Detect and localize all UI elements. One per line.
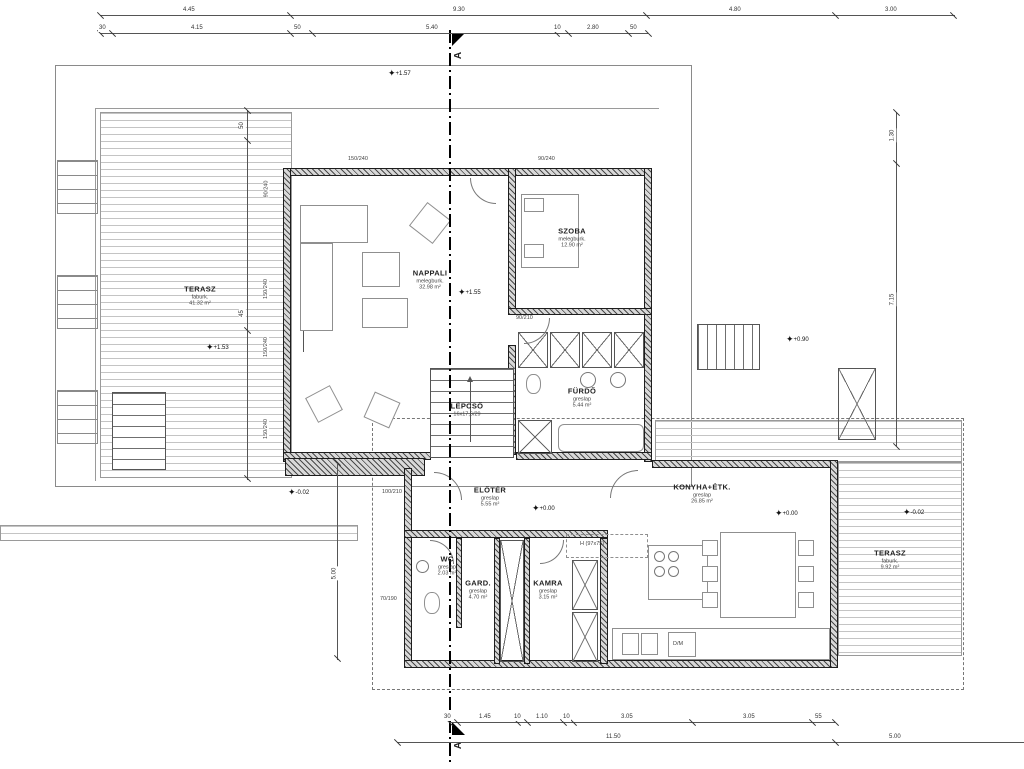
room-label-gard: GARD. greslap 4.70 m² (465, 579, 491, 600)
chair (798, 540, 814, 556)
window-dim: 70/190 (380, 596, 397, 602)
edge-steps (57, 275, 98, 329)
garden-wall (0, 525, 358, 541)
level-value: -0.02 (911, 510, 925, 516)
room-name: GARD. (465, 579, 491, 588)
room-area: 12.90 m² (558, 242, 586, 248)
room-label-szoba: SZOBA melegburk. 12.90 m² (558, 227, 586, 248)
wall-segment (283, 168, 652, 176)
chair (702, 592, 718, 608)
dim-label: 10 (562, 714, 571, 721)
terrace-deck-band (655, 420, 962, 462)
dim-line (337, 462, 338, 660)
pillow (524, 198, 544, 212)
dim-label: 30 (98, 25, 107, 32)
room-name: TERASZ (184, 285, 216, 294)
level-star-icon: ✦ (786, 334, 794, 344)
room-name: WC (438, 555, 457, 564)
wall-segment (283, 168, 291, 462)
dim-label: 30 (443, 714, 452, 721)
room-finish: melegburk. (558, 236, 586, 242)
level-value: +0.90 (794, 337, 809, 343)
fridge-dashed (566, 534, 648, 558)
room-finish: 16x17,6/29 (451, 411, 484, 417)
dim-label: 4.15 (190, 25, 204, 32)
dim-label: 5.00 (888, 734, 902, 741)
room-area: 26.85 m² (673, 498, 730, 504)
level-marker: ✦+0.00 (775, 508, 798, 519)
dim-label: 9.30 (452, 7, 466, 14)
toilet (526, 374, 541, 394)
section-line (449, 30, 451, 765)
chair (702, 566, 718, 582)
room-finish: melegburk. (413, 278, 447, 284)
stair-arrow-head (467, 376, 473, 382)
dim-label: 10 (553, 25, 562, 32)
wall-segment (508, 308, 652, 315)
room-label-terasz-felso: TERASZ faburk. 41.32 m² (184, 285, 216, 306)
level-marker: ✦-0.02 (903, 507, 924, 518)
room-area: 4.70 m² (465, 594, 491, 600)
room-area: 3.15 m² (533, 594, 562, 600)
chair (702, 540, 718, 556)
room-label-wc: WC greslap 2.03 m² (438, 555, 457, 576)
level-marker: ✦+1.53 (206, 342, 229, 353)
level-star-icon: ✦ (775, 508, 783, 518)
dim-label: 55 (814, 714, 823, 721)
level-marker: ✦+1.55 (458, 287, 481, 298)
level-value: +1.53 (214, 345, 229, 351)
room-area: 2.03 m² (438, 570, 457, 576)
section-flag-top (452, 33, 465, 46)
exterior-stair-left (112, 392, 166, 470)
chair (798, 592, 814, 608)
wall-segment (652, 460, 838, 468)
room-area: 41.32 m² (184, 300, 216, 306)
level-marker: ✦-0.02 (288, 487, 309, 498)
dim-label: 4.45 (182, 7, 196, 14)
cooktop-burner (654, 551, 665, 562)
dim-label: 10 (513, 714, 522, 721)
level-star-icon: ✦ (458, 287, 466, 297)
dim-label: 45 (239, 309, 246, 318)
closet-unit (550, 332, 580, 368)
level-value: +1.57 (396, 71, 411, 77)
level-star-icon: ✦ (388, 68, 396, 78)
level-star-icon: ✦ (206, 342, 214, 352)
closet-unit (582, 332, 612, 368)
window-dim: 90/210 (516, 315, 533, 321)
room-label-furdo: FÜRDŐ greslap 5.44 m² (568, 387, 596, 408)
exterior-stair-right (697, 324, 760, 370)
sink-bowl (641, 633, 658, 655)
room-name: KONYHA+ÉTK. (673, 483, 730, 492)
edge-steps (57, 160, 98, 214)
room-area: 5.44 m² (568, 402, 596, 408)
cooktop-burner (654, 566, 665, 577)
wall-segment (524, 538, 530, 664)
wall-segment (456, 538, 462, 628)
level-star-icon: ✦ (903, 507, 911, 517)
closet-unit (614, 332, 644, 368)
dim-label: 1.30 (889, 129, 896, 143)
pantry-shelf (572, 560, 598, 610)
dim-label: 5.40 (425, 25, 439, 32)
level-value: +0.00 (783, 511, 798, 517)
window-dim: 90/240 (538, 156, 555, 162)
room-finish: greslap (438, 564, 457, 570)
dim-label: 50 (293, 25, 302, 32)
dim-label: 5.00 (331, 567, 338, 581)
sofa (300, 205, 368, 243)
sideboard (362, 298, 408, 328)
room-label-konyha: KONYHA+ÉTK. greslap 26.85 m² (673, 483, 730, 504)
room-name: SZOBA (558, 227, 586, 236)
exterior-ramp-right (838, 368, 876, 440)
pantry-shelf (572, 612, 598, 662)
wall-segment (404, 468, 412, 668)
dim-line (100, 33, 648, 34)
room-name: ELŐTÉR (474, 486, 506, 495)
edge-steps (57, 390, 98, 444)
cooktop-burner (668, 566, 679, 577)
sink-bowl (622, 633, 639, 655)
dining-table (720, 532, 796, 618)
room-finish: greslap (465, 588, 491, 594)
shaft (500, 540, 524, 662)
level-star-icon: ✦ (532, 503, 540, 513)
washbasin (416, 560, 429, 573)
window-dim: 150/240 (263, 279, 269, 299)
dim-label: 2.80 (586, 25, 600, 32)
dim-line (100, 15, 955, 16)
level-value: +0.00 (540, 506, 555, 512)
dim-label: 1.45 (478, 714, 492, 721)
dim-label: 11.50 (605, 734, 622, 741)
wall-segment (830, 460, 838, 668)
window-dim: 150/240 (348, 156, 368, 162)
room-label-kamra: KAMRA greslap 3.15 m² (533, 579, 562, 600)
cooktop-burner (668, 551, 679, 562)
room-label-eloter: ELŐTÉR greslap 5.55 m² (474, 486, 506, 507)
level-value: -0.02 (296, 490, 310, 496)
coffee-table (362, 252, 400, 287)
window-dim: 150/240 (263, 337, 269, 357)
dim-label: 4.80 (728, 7, 742, 14)
washbasin (610, 372, 626, 388)
sofa (300, 243, 333, 331)
dim-line (397, 742, 1024, 743)
room-area: 9.92 m² (874, 564, 906, 570)
window-dim: 90/240 (263, 181, 269, 198)
bathtub (558, 424, 644, 452)
pillow (524, 244, 544, 258)
dim-label: 3.05 (742, 714, 756, 721)
window-dim: 150/240 (263, 419, 269, 439)
room-name: LÉPCSŐ (451, 403, 484, 412)
section-label-top: A (453, 52, 464, 59)
dim-label: 3.05 (620, 714, 634, 721)
window-dim: 100/210 (382, 489, 402, 495)
shower (518, 420, 552, 454)
room-area: 5.55 m² (474, 501, 506, 507)
wall-segment (508, 168, 516, 314)
wall-segment (644, 168, 652, 462)
room-name: TERASZ (874, 549, 906, 558)
dim-label: 50 (629, 25, 638, 32)
room-name: FÜRDŐ (568, 387, 596, 396)
wall-segment (404, 660, 838, 668)
room-area: 32.98 m² (413, 284, 447, 290)
floor-plan-sheet: D/M H (97x75) A A TERASZ faburk. 41.32 m… (0, 0, 1024, 769)
room-name: NAPPALI (413, 269, 447, 278)
room-label-lepcso: LÉPCSŐ 16x17,6/29 (451, 403, 484, 418)
dim-label: 3.00 (884, 7, 898, 14)
level-star-icon: ✦ (288, 487, 296, 497)
dim-label: 50 (239, 121, 246, 130)
appliance-label: H (97x75) (580, 541, 604, 547)
level-value: +1.55 (466, 290, 481, 296)
level-marker: ✦+1.57 (388, 68, 411, 79)
level-marker: ✦+0.90 (786, 334, 809, 345)
level-marker: ✦+0.00 (532, 503, 555, 514)
room-label-terasz-also: TERASZ faburk. 9.92 m² (874, 549, 906, 570)
dim-line (247, 110, 248, 480)
dim-label: 7.15 (889, 293, 896, 307)
toilet (424, 592, 440, 614)
room-label-nappali: NAPPALI melegburk. 32.98 m² (413, 269, 447, 290)
chair (798, 566, 814, 582)
dim-line (449, 722, 835, 723)
dim-label: 1.10 (535, 714, 549, 721)
room-name: KAMRA (533, 579, 562, 588)
dishwasher-label: D/M (673, 641, 683, 647)
